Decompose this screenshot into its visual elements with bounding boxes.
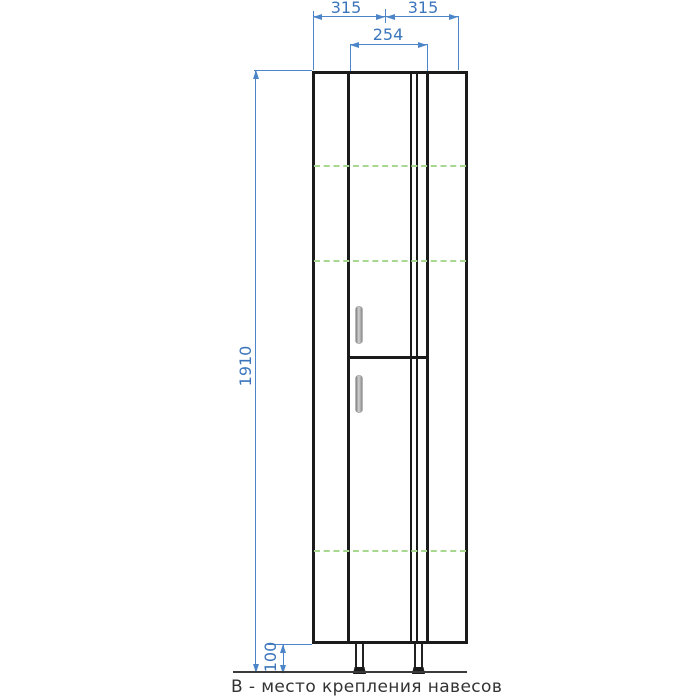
door-divider-line [348,356,429,359]
arrowhead-icon [418,42,427,48]
technical-drawing-canvas: 315 315 254 1910 100 В - место крепления… [0,0,700,700]
extension-line-right [458,16,459,70]
dimension-label-top-right: 315 [399,0,447,15]
dimension-line-height [255,70,256,673]
arrowhead-icon [449,14,458,20]
arrowhead-icon [253,70,259,79]
cabinet-leg-left [355,644,364,670]
arrowhead-icon [280,644,286,653]
dimension-line-door-width [350,44,427,45]
legend-text: В - место крепления навесов [231,677,502,697]
dimension-label-height: 1910 [238,342,254,390]
door-handle-bottom [356,376,362,412]
extension-line-door-left [350,44,351,71]
mount-line-bottom [314,550,466,552]
arrowhead-icon [386,14,395,20]
extension-line-door-right [427,44,428,71]
arrowhead-icon [313,14,322,20]
cabinet-leg-right [414,644,423,670]
mount-line-middle [314,260,466,262]
floor-line [233,671,467,673]
arrowhead-icon [376,14,385,20]
extension-line-top [254,70,312,71]
dimension-label-leg-height: 100 [263,639,279,675]
dimension-label-door-width: 254 [364,27,412,42]
door-handle-top [356,307,362,343]
arrowhead-icon [350,42,359,48]
extension-line-left [313,11,314,70]
dimension-label-top-left: 315 [322,0,370,15]
mount-line-top [314,165,466,167]
dimension-center-tick [385,9,386,23]
